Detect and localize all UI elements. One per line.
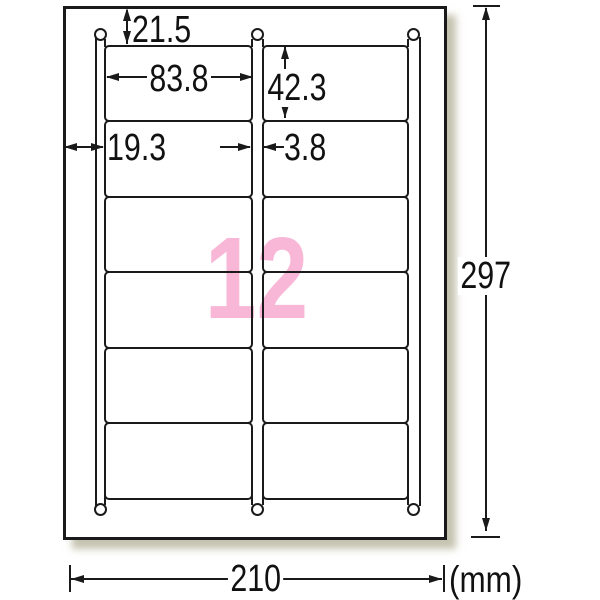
label-cell (104, 422, 253, 500)
diagram-canvas: 12 21.5 83.8 42.3 (0, 0, 600, 600)
dim-page-height-bottom-tick (471, 536, 500, 538)
dim-page-height-text: 297 (450, 257, 522, 295)
arrow-up-icon (281, 46, 289, 59)
dim-gap-right-line (263, 146, 284, 148)
label-cell (262, 271, 409, 349)
die-cut-bulb-top-right (407, 28, 420, 41)
dim-page-width-right-tick (443, 565, 445, 592)
dim-gap-text: 3.8 (284, 129, 337, 167)
label-cell (104, 196, 253, 273)
dim-side-margin-text: 19.3 (107, 129, 181, 167)
die-cut-bulb-bottom-center (251, 503, 264, 516)
arrow-right-icon (238, 143, 251, 151)
die-cut-bulb-top-left (94, 28, 107, 41)
dim-page-width-text: 210 (213, 560, 299, 598)
cut-line-right (419, 37, 421, 506)
die-cut-bulb-top-center (251, 28, 264, 41)
unit-label: (mm) (449, 561, 535, 598)
arrow-down-icon (482, 518, 490, 531)
label-cell (104, 271, 253, 349)
label-cell (262, 422, 409, 500)
die-cut-bulb-bottom-left (94, 503, 107, 516)
dim-top-margin-text: 21.5 (132, 11, 206, 49)
arrow-left-icon (64, 143, 77, 151)
arrow-up-icon (482, 7, 490, 20)
arrow-down-icon (123, 31, 131, 44)
arrow-right-icon (91, 143, 104, 151)
arrow-right-icon (429, 575, 442, 583)
arrow-up-icon (123, 8, 131, 21)
dim-label-height-text: 42.3 (265, 69, 345, 107)
die-cut-bulb-bottom-right (407, 503, 420, 516)
label-cell (262, 347, 409, 424)
arrow-left-icon (71, 575, 84, 583)
label-cell (104, 347, 253, 424)
label-cell (262, 196, 409, 273)
cut-line-left (95, 37, 97, 506)
dim-label-width-text: 83.8 (107, 60, 251, 98)
